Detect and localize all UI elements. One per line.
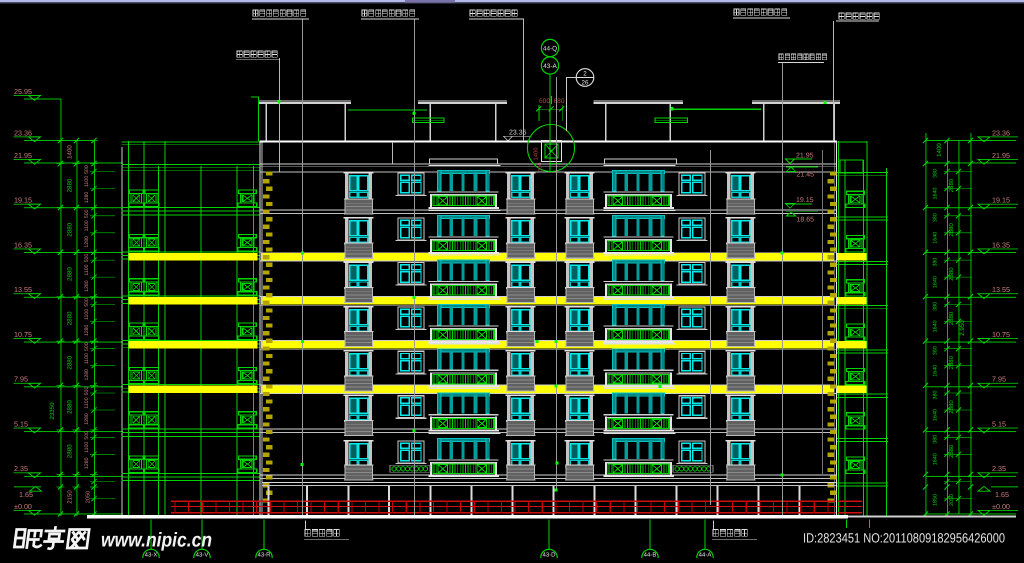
svg-text:1640: 1640 [933,188,939,200]
svg-text:16.35: 16.35 [14,240,32,249]
svg-text:2880: 2880 [67,222,74,236]
svg-text:500: 500 [84,431,90,440]
svg-text:1400: 1400 [67,145,74,159]
svg-text:2: 2 [583,71,587,78]
svg-text:2880: 2880 [67,444,74,458]
svg-text:16.35: 16.35 [992,240,1010,249]
svg-text:2880: 2880 [948,444,955,458]
svg-text:1280: 1280 [84,325,90,337]
svg-text:1280: 1280 [84,369,90,381]
svg-text:44-Q: 44-Q [543,46,557,53]
svg-text:2880: 2880 [67,178,74,192]
svg-text:1640: 1640 [933,320,939,332]
svg-text:18.65: 18.65 [797,216,815,223]
svg-text:2880: 2880 [67,355,74,369]
svg-text:2880: 2880 [67,400,74,414]
svg-text:1280: 1280 [84,192,90,204]
svg-text:±0.00: ±0.00 [992,502,1010,511]
svg-text:5.15: 5.15 [14,419,28,428]
svg-text:25.95: 25.95 [14,87,32,96]
svg-text:2880: 2880 [67,311,74,325]
svg-text:500: 500 [84,298,90,307]
svg-text:2880: 2880 [67,267,74,281]
svg-text:500: 500 [84,387,90,396]
svg-text:1400: 1400 [533,148,540,161]
svg-text:1100: 1100 [84,397,90,408]
svg-text:2.35: 2.35 [992,464,1006,473]
svg-text:44-A: 44-A [699,552,712,559]
svg-text:500: 500 [84,209,90,218]
svg-text:19.15: 19.15 [796,197,814,204]
svg-text:21.45: 21.45 [797,172,815,179]
svg-text:1640: 1640 [933,453,939,465]
svg-text:500: 500 [84,342,90,351]
svg-text:2.950: 2.950 [959,320,966,336]
svg-text:43-D: 43-D [542,552,556,559]
svg-text:±0.00: ±0.00 [14,502,32,511]
svg-text:1640: 1640 [933,232,939,244]
svg-text:13.55: 13.55 [14,285,32,294]
svg-text:680: 680 [554,98,565,105]
svg-text:380: 380 [933,435,939,444]
svg-text:2880: 2880 [948,222,955,236]
svg-text:43-X: 43-X [145,552,158,559]
svg-text:1850: 1850 [933,494,939,506]
svg-text:2880: 2880 [948,311,955,325]
svg-text:380: 380 [933,302,939,311]
svg-text:1100: 1100 [84,353,90,364]
svg-text:7.95: 7.95 [14,375,28,384]
svg-text:21.95: 21.95 [796,152,814,159]
svg-text:1640: 1640 [933,365,939,377]
svg-text:ID:2823451 NO:2011080918295642: ID:2823451 NO:20110809182956426000 [803,531,1005,546]
svg-text:1640: 1640 [933,409,939,421]
svg-text:19.15: 19.15 [14,196,32,205]
svg-text:5.15: 5.15 [992,419,1006,428]
svg-text:43-R: 43-R [257,552,271,559]
svg-text:43-A: 43-A [543,63,557,70]
svg-text:600: 600 [539,98,550,105]
svg-text:1100: 1100 [84,176,90,187]
svg-text:1100: 1100 [84,264,90,275]
svg-text:300: 300 [538,163,544,172]
svg-text:1100: 1100 [84,220,90,231]
svg-text:23350: 23350 [49,402,56,420]
svg-text:380: 380 [933,391,939,400]
svg-text:380: 380 [933,213,939,222]
svg-text:1100: 1100 [84,442,90,453]
svg-text:7.95: 7.95 [992,375,1006,384]
svg-text:10.75: 10.75 [14,330,32,339]
svg-text:23.36: 23.36 [992,128,1010,137]
svg-text:13.55: 13.55 [992,285,1010,294]
svg-text:1640: 1640 [933,276,939,288]
svg-text:2880: 2880 [948,355,955,369]
svg-text:1100: 1100 [84,309,90,320]
svg-text:1280: 1280 [84,280,90,292]
svg-text:2880: 2880 [948,400,955,414]
svg-text:43-V: 43-V [196,552,209,559]
svg-text:380: 380 [933,346,939,355]
svg-text:2050: 2050 [86,491,92,503]
svg-text:1280: 1280 [84,236,90,248]
svg-text:2.35: 2.35 [14,464,28,473]
svg-text:500: 500 [84,254,90,263]
svg-text:www.nipic.cn: www.nipic.cn [101,530,212,552]
svg-text:2150: 2150 [67,490,74,504]
svg-text:1400: 1400 [936,143,943,157]
svg-text:500: 500 [84,165,90,174]
svg-text:2880: 2880 [948,178,955,192]
svg-text:44-B: 44-B [644,552,657,559]
svg-text:1.65: 1.65 [19,490,33,499]
svg-text:380: 380 [933,258,939,267]
svg-text:21.95: 21.95 [992,151,1010,160]
svg-text:21.95: 21.95 [14,151,32,160]
svg-text:2050: 2050 [949,494,955,506]
svg-text:1280: 1280 [84,413,90,425]
svg-text:10.75: 10.75 [992,330,1010,339]
svg-text:2880: 2880 [948,267,955,281]
svg-text:1.65: 1.65 [995,490,1009,499]
svg-text:23.36: 23.36 [14,128,32,137]
svg-text:26: 26 [582,80,589,87]
svg-text:19.15: 19.15 [992,196,1010,205]
svg-text:380: 380 [933,169,939,178]
svg-text:1280: 1280 [84,457,90,469]
